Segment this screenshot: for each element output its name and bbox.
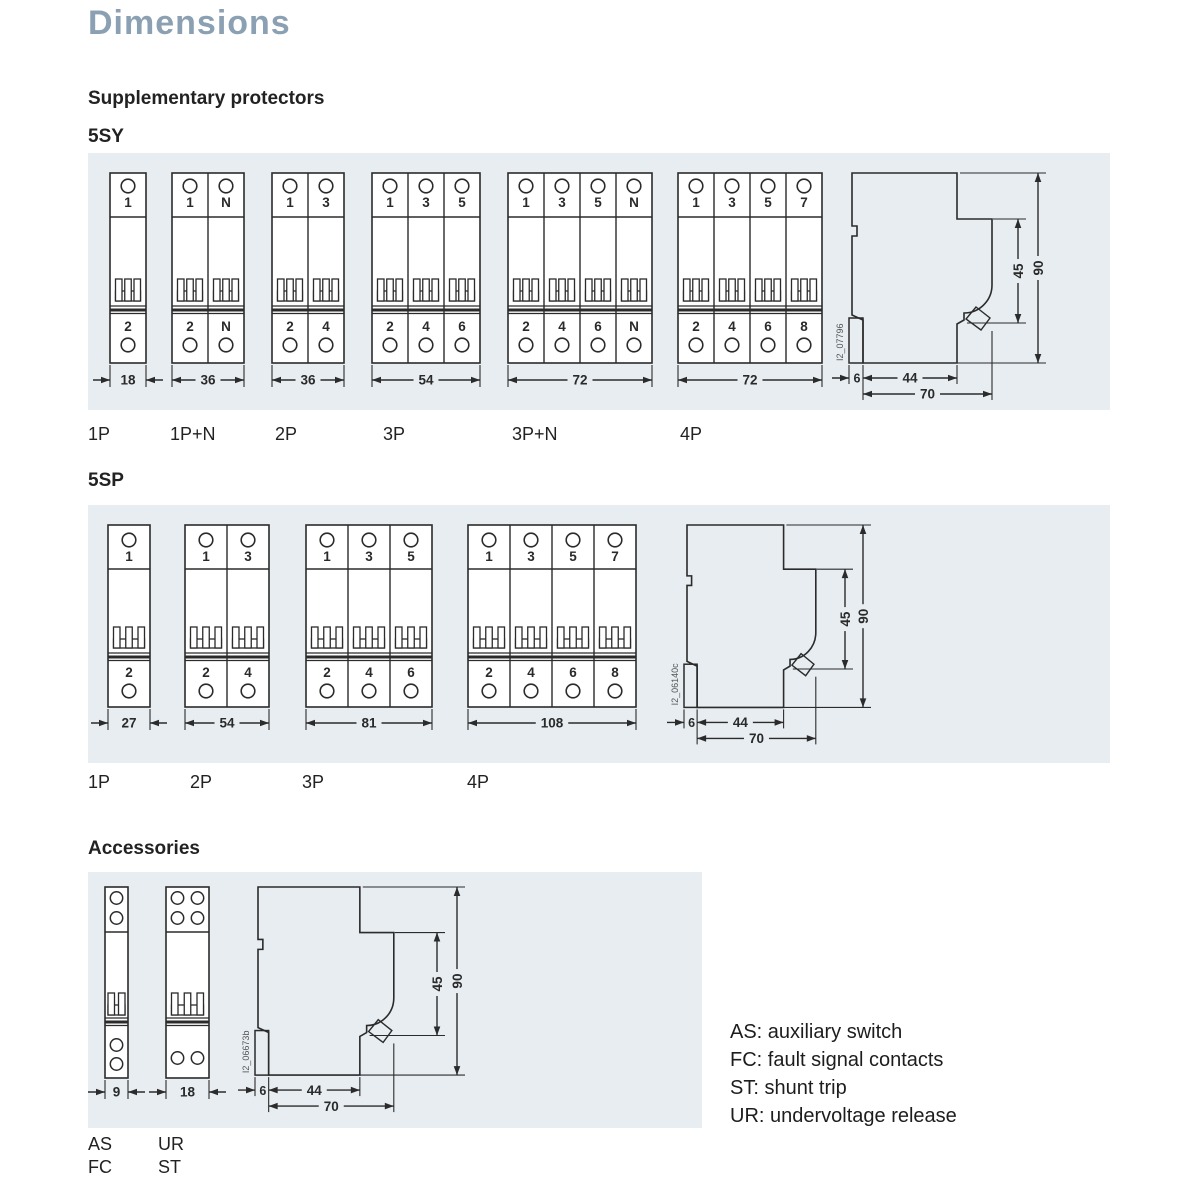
svg-text:6: 6 bbox=[594, 319, 602, 334]
5sy-label-3pn: 3P+N bbox=[512, 424, 558, 445]
svg-text:1: 1 bbox=[522, 195, 530, 210]
svg-text:90: 90 bbox=[1031, 260, 1046, 275]
legend-st: ST: shunt trip bbox=[730, 1074, 957, 1102]
svg-text:6: 6 bbox=[569, 665, 577, 680]
svg-text:5: 5 bbox=[594, 195, 602, 210]
accessory-device-ur-st: 18 bbox=[149, 887, 226, 1100]
svg-text:1: 1 bbox=[386, 195, 394, 210]
svg-text:2: 2 bbox=[323, 665, 331, 680]
series-5sy-heading: 5SY bbox=[88, 126, 124, 148]
svg-text:8: 8 bbox=[611, 665, 619, 680]
svg-text:4: 4 bbox=[365, 665, 373, 680]
svg-text:2: 2 bbox=[286, 319, 294, 334]
svg-text:2: 2 bbox=[522, 319, 530, 334]
svg-text:5: 5 bbox=[569, 549, 577, 564]
5sy-breaker-2p: 123436 bbox=[272, 173, 344, 388]
svg-text:70: 70 bbox=[749, 731, 764, 746]
svg-text:54: 54 bbox=[219, 716, 235, 731]
svg-text:90: 90 bbox=[856, 609, 871, 624]
accessory-label-fc: FC bbox=[88, 1157, 112, 1178]
svg-text:2: 2 bbox=[124, 319, 132, 334]
svg-text:90: 90 bbox=[450, 974, 465, 989]
svg-text:6: 6 bbox=[407, 665, 415, 680]
svg-text:3: 3 bbox=[728, 195, 736, 210]
svg-text:4: 4 bbox=[422, 319, 430, 334]
abbreviation-legend: AS: auxiliary switch FC: fault signal co… bbox=[730, 1018, 957, 1130]
svg-text:4: 4 bbox=[728, 319, 736, 334]
svg-text:18: 18 bbox=[180, 1085, 196, 1100]
svg-text:N: N bbox=[221, 319, 231, 334]
svg-text:1: 1 bbox=[286, 195, 294, 210]
5sp-breaker-4p: 12345678108 bbox=[468, 525, 636, 731]
svg-text:2: 2 bbox=[692, 319, 700, 334]
svg-text:6: 6 bbox=[854, 372, 861, 386]
svg-text:N: N bbox=[221, 195, 231, 210]
svg-text:2: 2 bbox=[186, 319, 194, 334]
5sy-dimension-drawing: 121812NN3612343612345654123456NN72123456… bbox=[88, 153, 1110, 410]
svg-text:36: 36 bbox=[200, 373, 216, 388]
svg-text:2: 2 bbox=[125, 665, 133, 680]
svg-text:18: 18 bbox=[120, 373, 136, 388]
svg-text:72: 72 bbox=[742, 373, 757, 388]
5sy-breaker-3pn: 123456NN72 bbox=[508, 173, 652, 388]
svg-text:72: 72 bbox=[572, 373, 587, 388]
svg-text:N: N bbox=[629, 195, 639, 210]
accessory-device-as-fc: 9 bbox=[88, 887, 145, 1100]
svg-text:3: 3 bbox=[365, 549, 373, 564]
svg-text:8: 8 bbox=[800, 319, 808, 334]
5sy-label-1pn: 1P+N bbox=[170, 424, 216, 445]
accessories-side-view: 459064470I2_06673b bbox=[238, 887, 465, 1114]
svg-text:6: 6 bbox=[259, 1084, 266, 1098]
5sp-label-1p: 1P bbox=[88, 772, 110, 793]
svg-text:3: 3 bbox=[422, 195, 430, 210]
svg-text:1: 1 bbox=[124, 195, 132, 210]
svg-text:54: 54 bbox=[418, 373, 434, 388]
section-supplementary-heading: Supplementary protectors bbox=[88, 88, 325, 110]
legend-as: AS: auxiliary switch bbox=[730, 1018, 957, 1046]
page-title: Dimensions bbox=[88, 4, 291, 43]
svg-text:1: 1 bbox=[202, 549, 210, 564]
svg-text:6: 6 bbox=[764, 319, 772, 334]
svg-text:I2_06140c: I2_06140c bbox=[670, 663, 680, 706]
svg-text:36: 36 bbox=[300, 373, 316, 388]
5sy-breaker-3p: 12345654 bbox=[372, 173, 480, 388]
section-accessories-heading: Accessories bbox=[88, 838, 200, 860]
5sy-side-view: 459064470I2_07796 bbox=[832, 173, 1046, 402]
svg-text:2: 2 bbox=[386, 319, 394, 334]
5sy-drawing-svg: 121812NN3612343612345654123456NN72123456… bbox=[88, 153, 1110, 410]
5sy-label-4p: 4P bbox=[680, 424, 702, 445]
svg-text:3: 3 bbox=[244, 549, 252, 564]
svg-text:1: 1 bbox=[125, 549, 133, 564]
svg-text:81: 81 bbox=[361, 716, 377, 731]
svg-text:N: N bbox=[629, 319, 639, 334]
svg-text:1: 1 bbox=[323, 549, 331, 564]
svg-text:2: 2 bbox=[485, 665, 493, 680]
svg-text:6: 6 bbox=[688, 716, 695, 730]
svg-text:27: 27 bbox=[121, 716, 136, 731]
svg-text:5: 5 bbox=[407, 549, 415, 564]
series-5sp-heading: 5SP bbox=[88, 470, 124, 492]
svg-text:1: 1 bbox=[692, 195, 700, 210]
accessories-dimension-drawing: 918459064470I2_06673b bbox=[88, 872, 702, 1128]
5sy-label-2p: 2P bbox=[275, 424, 297, 445]
legend-ur: UR: undervoltage release bbox=[730, 1102, 957, 1130]
svg-text:1: 1 bbox=[186, 195, 194, 210]
svg-text:3: 3 bbox=[527, 549, 535, 564]
svg-text:7: 7 bbox=[800, 195, 808, 210]
svg-text:70: 70 bbox=[920, 387, 935, 402]
5sy-label-1p: 1P bbox=[88, 424, 110, 445]
svg-text:70: 70 bbox=[324, 1099, 339, 1114]
svg-text:7: 7 bbox=[611, 549, 619, 564]
svg-text:44: 44 bbox=[307, 1083, 323, 1098]
5sp-drawing-svg: 12271234541234568112345678108459064470I2… bbox=[88, 505, 1110, 763]
accessories-drawing-svg: 918459064470I2_06673b bbox=[88, 872, 702, 1128]
5sy-breaker-1pn: 12NN36 bbox=[172, 173, 244, 388]
svg-text:I2_06673b: I2_06673b bbox=[241, 1031, 251, 1074]
5sp-breaker-1p: 1227 bbox=[91, 525, 167, 731]
svg-text:44: 44 bbox=[733, 715, 749, 730]
svg-text:45: 45 bbox=[430, 976, 445, 992]
svg-text:108: 108 bbox=[541, 716, 564, 731]
svg-text:2: 2 bbox=[202, 665, 210, 680]
svg-text:1: 1 bbox=[485, 549, 493, 564]
svg-text:5: 5 bbox=[764, 195, 772, 210]
svg-text:3: 3 bbox=[558, 195, 566, 210]
5sp-breaker-2p: 123454 bbox=[185, 525, 269, 731]
svg-text:5: 5 bbox=[458, 195, 466, 210]
accessory-label-st: ST bbox=[158, 1157, 181, 1178]
5sy-breaker-4p: 1234567872 bbox=[678, 173, 822, 388]
svg-text:4: 4 bbox=[322, 319, 330, 334]
svg-text:4: 4 bbox=[244, 665, 252, 680]
svg-text:45: 45 bbox=[838, 611, 853, 627]
5sp-side-view: 459064470I2_06140c bbox=[667, 525, 871, 746]
svg-text:9: 9 bbox=[113, 1085, 121, 1100]
svg-text:44: 44 bbox=[902, 371, 918, 386]
legend-fc: FC: fault signal contacts bbox=[730, 1046, 957, 1074]
5sp-dimension-drawing: 12271234541234568112345678108459064470I2… bbox=[88, 505, 1110, 763]
5sp-label-3p: 3P bbox=[302, 772, 324, 793]
svg-text:3: 3 bbox=[322, 195, 330, 210]
5sp-breaker-3p: 12345681 bbox=[306, 525, 432, 731]
5sp-label-4p: 4P bbox=[467, 772, 489, 793]
svg-text:45: 45 bbox=[1011, 263, 1026, 279]
svg-text:I2_07796: I2_07796 bbox=[835, 323, 845, 361]
accessory-label-ur: UR bbox=[158, 1134, 184, 1155]
5sp-label-2p: 2P bbox=[190, 772, 212, 793]
page: Dimensions Supplementary protectors 5SY … bbox=[0, 0, 1184, 1184]
svg-text:4: 4 bbox=[558, 319, 566, 334]
svg-text:6: 6 bbox=[458, 319, 466, 334]
svg-text:4: 4 bbox=[527, 665, 535, 680]
5sy-label-3p: 3P bbox=[383, 424, 405, 445]
5sy-breaker-1p: 1218 bbox=[93, 173, 163, 388]
accessory-label-as: AS bbox=[88, 1134, 112, 1155]
